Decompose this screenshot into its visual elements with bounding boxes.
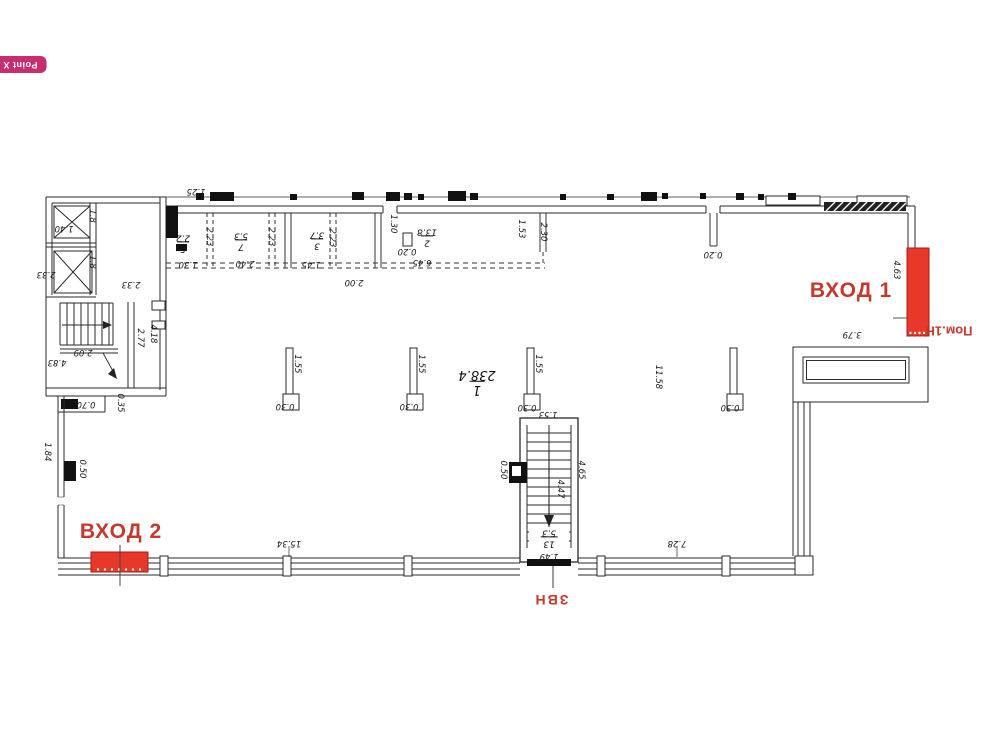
entrance2-label: ВХОД 2 xyxy=(80,520,162,544)
dim-label: 1.55 xyxy=(533,355,543,374)
dim-label: 2.23 xyxy=(327,229,337,248)
dim-label: 2.40 xyxy=(236,258,255,268)
dim-label: 1.49 xyxy=(540,551,559,561)
dim-label: 4.47 xyxy=(555,480,565,499)
dim-label: 1.40 xyxy=(55,223,74,233)
dim-label: 4.83 xyxy=(48,357,67,367)
dim-label: 2.33 xyxy=(122,279,141,289)
room-area: 2.2 xyxy=(176,232,190,242)
dim-label: 15.34 xyxy=(277,538,301,548)
dim-label: 1.30 xyxy=(179,259,198,269)
dim-label: 1.53 xyxy=(516,220,526,239)
dim-label: 0.70 xyxy=(77,399,96,409)
dim-label: 1.30 xyxy=(388,215,398,234)
room-area: 238.4 xyxy=(458,366,495,380)
room-number: 3 xyxy=(311,239,323,250)
floor-plan-page: 1.25 1.40 1.8 1.8 2.33 2.33 2.09 4.83 2.… xyxy=(0,0,1000,750)
room-tag: 13 5.3 xyxy=(540,527,557,548)
dim-label: 2.23 xyxy=(266,228,276,247)
entrance2-marker xyxy=(91,545,148,586)
bottom-window-band xyxy=(58,546,813,576)
dim-label: 4.18 xyxy=(148,325,158,344)
dim-label: 3.79 xyxy=(843,329,862,339)
dim-label: 2.33 xyxy=(37,269,56,279)
room-number: 7 xyxy=(235,240,247,251)
dim-label: 2.77 xyxy=(135,329,145,348)
room-area: 5.3 xyxy=(540,527,557,537)
room-tag-main: 1 238.4 xyxy=(458,366,495,396)
dim-label: 2.09 xyxy=(74,347,93,357)
dim-label: 1.8 xyxy=(87,255,97,269)
dim-label: 1.8 xyxy=(87,209,97,223)
dim-label: 1.45 xyxy=(302,259,321,269)
dim-label: 2.23 xyxy=(204,228,214,247)
room-tag: 5 2.2 xyxy=(176,232,190,253)
dim-label: 0.20 xyxy=(398,246,417,256)
dim-label: 0.50 xyxy=(498,461,508,480)
dim-label: 7.28 xyxy=(668,538,687,548)
dim-label: 1.55 xyxy=(416,355,426,374)
entrance1-label: ВХОД 1 xyxy=(810,279,892,303)
dim-label: 0.30 xyxy=(721,402,740,412)
room-number: 13 xyxy=(540,537,557,548)
dim-label: 0.30 xyxy=(276,401,295,411)
dim-label: 6.45 xyxy=(413,257,432,267)
dim-label: 2.30 xyxy=(538,223,548,242)
room-number: 5 xyxy=(177,242,189,253)
dim-label: 0.30 xyxy=(518,402,537,412)
room-tag: 2 13.8 xyxy=(417,226,437,247)
room-number: 2 xyxy=(421,236,433,247)
room-area: 5.3 xyxy=(234,230,248,240)
left-outer-wall xyxy=(58,396,76,558)
dim-label: 4.65 xyxy=(576,461,586,480)
dim-label: 4.63 xyxy=(891,261,901,280)
watermark-badge: Point X U xyxy=(0,56,47,73)
dim-label: 11.58 xyxy=(653,365,663,389)
dim-label: 1.55 xyxy=(292,355,302,374)
dim-label: 1.25 xyxy=(187,186,206,196)
room-area: 3.7 xyxy=(310,229,324,239)
dim-label: 0.30 xyxy=(400,401,419,411)
room-tag: 7 5.3 xyxy=(234,230,248,251)
lift-shaft-1-cross xyxy=(54,206,90,238)
suite-label: Пом.1Н xyxy=(926,324,973,339)
right-landing xyxy=(793,318,928,556)
dim-label: 0.20 xyxy=(704,249,723,259)
dim-label: 1.84 xyxy=(42,443,52,462)
room-number: 1 xyxy=(470,381,484,396)
room-tag: 3 3.7 xyxy=(310,229,324,250)
dim-label: 0.35 xyxy=(115,394,125,413)
dim-label: 2.00 xyxy=(345,277,364,287)
floor-plan-drawing xyxy=(0,0,1000,750)
rear-entrance-label: ЗВН xyxy=(534,592,569,608)
dim-label: 0.50 xyxy=(77,460,87,479)
dim-label: 1.53 xyxy=(539,409,558,419)
room-area: 13.8 xyxy=(417,226,437,236)
column-row xyxy=(283,348,743,410)
